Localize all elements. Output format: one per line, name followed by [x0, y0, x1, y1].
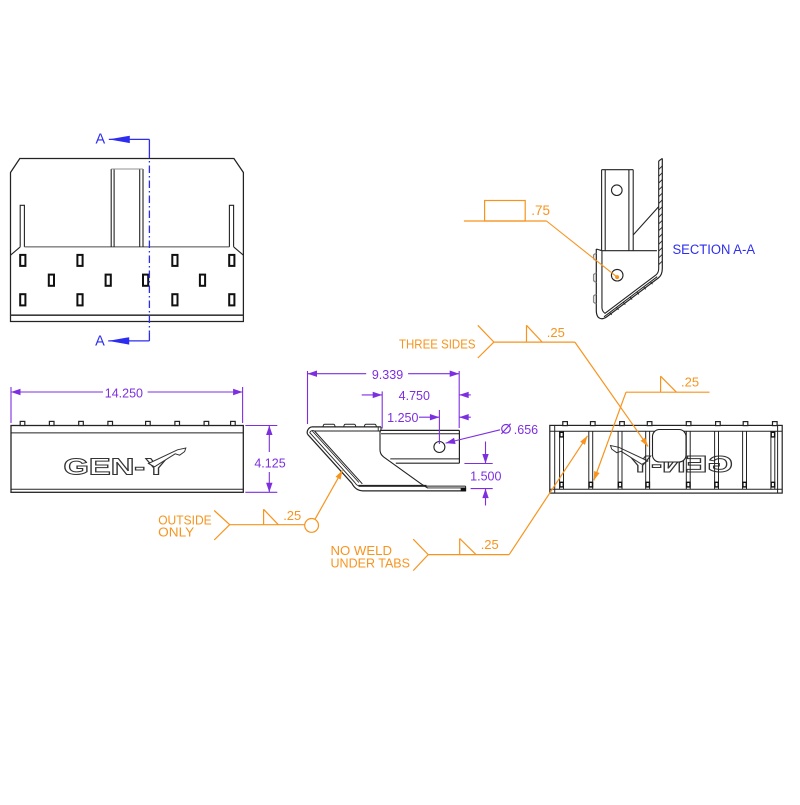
- svg-text:1.250: 1.250: [387, 411, 418, 425]
- svg-text:GEN-Y: GEN-Y: [64, 454, 168, 480]
- svg-text:4.125: 4.125: [254, 456, 285, 470]
- svg-text:.25: .25: [481, 537, 499, 552]
- svg-text:A: A: [95, 333, 105, 349]
- svg-text:.656: .656: [514, 423, 538, 437]
- svg-text:THREE SIDES: THREE SIDES: [399, 337, 476, 352]
- svg-text:SECTION A-A: SECTION A-A: [673, 242, 756, 257]
- svg-text:A: A: [95, 132, 105, 148]
- svg-text:UNDER TABS: UNDER TABS: [331, 555, 411, 570]
- svg-text:.75: .75: [531, 203, 550, 218]
- svg-text:9.339: 9.339: [372, 368, 403, 382]
- svg-text:.25: .25: [681, 375, 699, 390]
- svg-text:ONLY: ONLY: [158, 525, 194, 540]
- svg-text:.25: .25: [547, 325, 565, 340]
- svg-text:1.500: 1.500: [470, 470, 501, 484]
- svg-text:4.750: 4.750: [399, 389, 430, 403]
- svg-text:14.250: 14.250: [105, 387, 143, 401]
- svg-text:.25: .25: [283, 508, 301, 523]
